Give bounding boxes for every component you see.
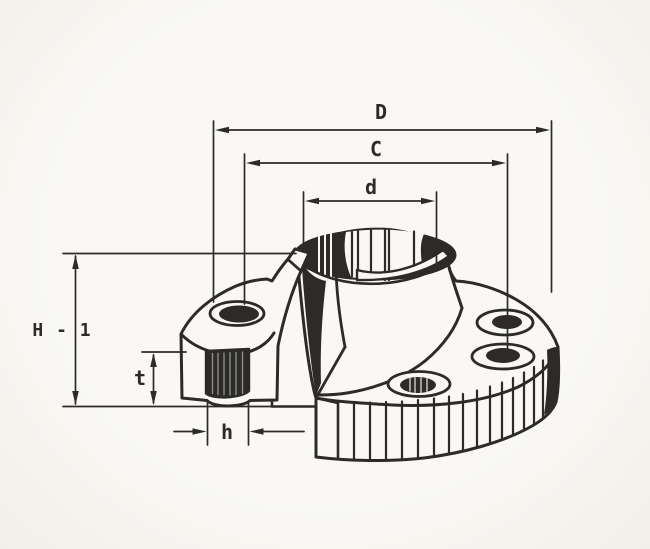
arrowhead-down xyxy=(72,391,79,405)
arrowhead-left xyxy=(215,127,229,134)
flange-main-body xyxy=(295,229,559,460)
bolt-hole-front xyxy=(388,372,450,397)
arrowhead-right xyxy=(536,127,550,134)
label-D: D xyxy=(375,100,387,124)
flange-technical-drawing: D C d H - 1 xyxy=(0,0,650,549)
drawing-page: D C d H - 1 xyxy=(0,0,650,549)
label-h: h xyxy=(221,420,233,444)
bolt-hole-lower-right xyxy=(472,344,534,369)
label-t: t xyxy=(134,366,146,390)
arrowhead-right xyxy=(421,198,435,205)
arrowhead-up xyxy=(72,255,79,269)
arrowhead-right-pointing xyxy=(193,428,207,435)
bolt-hole-left xyxy=(210,302,264,326)
arrowhead-down xyxy=(150,391,157,405)
flange-left-cut-piece xyxy=(181,249,316,407)
arrowhead-up xyxy=(150,353,157,367)
section-bottom-step xyxy=(272,400,316,407)
bolt-hole-upper-right xyxy=(477,310,533,335)
dimension-thickness: t xyxy=(134,352,186,405)
arrowhead-left xyxy=(246,160,260,167)
arrowhead-left xyxy=(305,198,319,205)
label-C: C xyxy=(370,137,382,161)
label-d: d xyxy=(365,175,377,199)
arrowhead-right xyxy=(492,160,506,167)
arrowhead-left-pointing xyxy=(250,428,264,435)
label-H1: H - 1 xyxy=(32,320,91,341)
